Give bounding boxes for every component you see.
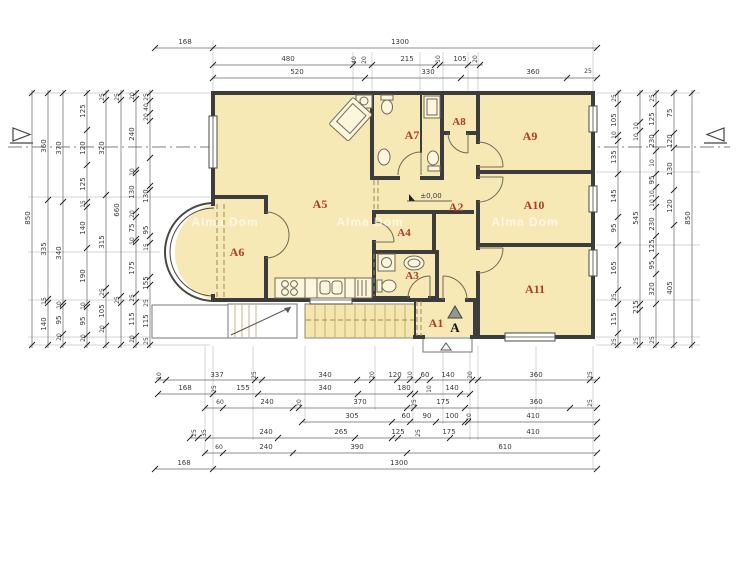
dim-label: 60 <box>402 412 411 420</box>
dim-label: 340 <box>318 384 331 392</box>
dim-label: 168 <box>178 38 191 46</box>
dim-label: 610 <box>498 443 511 451</box>
dim-label: 40 <box>351 56 358 64</box>
level-value: ±0,00 <box>420 192 441 200</box>
dim-label: 105 <box>453 55 466 63</box>
dim-label: 265 <box>334 428 347 436</box>
dim-label: 25 <box>211 385 218 393</box>
dim-label: 155 <box>236 384 249 392</box>
dim-label: 340 <box>318 371 331 379</box>
dim-label: 10 <box>426 385 433 393</box>
watermark: Alma Dom Alma Dom Alma Dom <box>191 215 558 229</box>
dim-label: 125 <box>648 112 656 125</box>
dim-label: 95 <box>610 224 618 233</box>
dim-label: 25 <box>611 338 618 346</box>
section-flag-left <box>13 128 30 141</box>
room-label-a11: A11 <box>525 282 545 296</box>
dim-label: 125 <box>79 177 87 190</box>
dim-label: 105 <box>98 304 106 317</box>
dim-label: 125 <box>648 239 656 252</box>
dim-label: 850 <box>24 211 32 224</box>
room-label-a3: A3 <box>405 270 419 282</box>
dim-label: 75 <box>128 224 136 233</box>
dim-left: 850 360 335 15 140 370 340 10 95 20 125 … <box>24 90 153 348</box>
dim-label: 25 <box>143 337 150 345</box>
dim-label: 520 <box>290 68 303 76</box>
dim-label: 340 <box>55 246 63 259</box>
dim-label: 660 <box>113 203 121 216</box>
dim-label: 240 <box>260 398 273 406</box>
dim-label: 20 <box>80 334 87 342</box>
dim-label: 1300 <box>390 459 408 467</box>
dim-label: 10 <box>633 133 640 141</box>
dim-label: 850 <box>684 211 692 224</box>
svg-text:Alma Dom: Alma Dom <box>191 215 258 229</box>
dim-label: 60 <box>421 371 430 379</box>
dim-label: 240 <box>128 127 136 140</box>
dim-label: 20 <box>467 371 474 379</box>
room-label-a1: A1 <box>429 316 444 330</box>
dim-label: 175 <box>442 428 455 436</box>
dim-label: 10 <box>649 190 656 198</box>
dim-label: 20 <box>56 333 63 341</box>
kitchen-counter <box>275 278 372 298</box>
dim-label: 95 <box>648 261 656 270</box>
dim-label: 165 <box>610 261 618 274</box>
dim-label: 115 <box>128 312 136 325</box>
dim-label: 410 <box>526 428 539 436</box>
dim-label: 10 <box>435 55 442 63</box>
dim-label: 130 <box>666 162 674 175</box>
dim-label: 1300 <box>391 38 409 46</box>
dim-label: 480 <box>281 55 294 63</box>
external-stair <box>152 304 297 338</box>
dim-label: 115 <box>142 314 150 327</box>
dim-label: 145 <box>610 189 618 202</box>
dim-right: 25 105 10 135 145 95 165 25 115 25 10 10… <box>610 90 695 348</box>
dim-label: 305 <box>345 412 358 420</box>
floor-plan-page: Alma Dom Alma Dom Alma Dom A1 A2 A3 A4 A… <box>0 0 738 563</box>
dim-label: 95 <box>142 226 150 235</box>
floor-plan-drawing: Alma Dom Alma Dom Alma Dom A1 A2 A3 A4 A… <box>0 0 738 563</box>
dim-label: 240 <box>259 443 272 451</box>
dim-label: 315 <box>98 235 106 248</box>
room-label-a7: A7 <box>405 128 420 142</box>
dim-label: 240 <box>259 428 272 436</box>
dim-top: 168 1300 480 40 20 215 10 105 20 520 330… <box>152 38 600 81</box>
svg-text:Alma Dom: Alma Dom <box>491 215 558 229</box>
dim-label: 20 <box>472 55 479 63</box>
dim-label: 120 <box>79 141 87 154</box>
dim-label: 360 <box>526 68 539 76</box>
dim-label: 140 <box>445 384 458 392</box>
dim-label: 140 <box>441 371 454 379</box>
dim-label: 60 <box>216 399 224 406</box>
dim-label: 230 <box>648 217 656 230</box>
dim-label: 25 <box>611 293 618 301</box>
dim-label: 25 <box>584 68 592 75</box>
dim-label: 360 <box>529 398 542 406</box>
dim-label: 115 <box>610 312 618 325</box>
dim-label: 25 <box>143 299 150 307</box>
dim-label: 168 <box>177 459 190 467</box>
dim-label: 330 <box>421 68 434 76</box>
dim-label: 190 <box>79 269 87 282</box>
dim-label: 95 <box>648 176 656 185</box>
dim-label: 335 <box>40 242 48 255</box>
room-label-a9: A9 <box>523 129 538 143</box>
dim-label: 140 <box>40 317 48 330</box>
dim-label: 545 <box>632 211 640 224</box>
dim-label: 120 <box>666 134 674 147</box>
svg-text:Alma Dom: Alma Dom <box>336 215 403 229</box>
dim-label: 125 <box>79 104 87 117</box>
dim-bottom: 10 337 25 340 20 120 10 60 140 20 360 25… <box>152 371 600 472</box>
entrance-porch <box>423 338 472 352</box>
section-letter: A <box>450 320 460 335</box>
section-flag-right <box>707 128 724 141</box>
dim-label: 25 <box>633 337 640 345</box>
dim-label: 25 <box>415 429 422 437</box>
dim-label: 125 <box>391 428 404 436</box>
room-label-a8: A8 <box>452 116 466 128</box>
room-label-a4: A4 <box>397 227 411 239</box>
window-a10 <box>589 186 597 212</box>
dim-label: 60 <box>215 444 223 451</box>
dim-label: 168 <box>178 384 191 392</box>
dim-label: 215 <box>400 55 413 63</box>
dim-label: 360 <box>529 371 542 379</box>
dim-label: 370 <box>353 398 366 406</box>
window-a11 <box>589 250 597 276</box>
room-label-a2: A2 <box>449 200 464 214</box>
dim-label: 25 <box>649 336 656 344</box>
room-label-a10: A10 <box>524 198 545 212</box>
room-label-a5: A5 <box>313 197 328 211</box>
dim-label: 120 <box>666 199 674 212</box>
dim-label: 140 <box>79 221 87 234</box>
dim-label: 20 <box>361 56 368 64</box>
dim-label: 20 <box>129 210 136 218</box>
dim-label: 10 <box>611 131 618 139</box>
dim-label: 10 <box>649 159 656 167</box>
dim-label: 100 <box>445 412 458 420</box>
window-a11-bottom <box>505 333 555 341</box>
dim-label: 320 <box>98 141 106 154</box>
dim-label: 75 <box>666 109 674 118</box>
dim-label: 337 <box>210 371 223 379</box>
window-left <box>209 116 217 168</box>
dim-label: 20 <box>129 92 136 100</box>
dim-label: 360 <box>40 139 48 152</box>
dim-label: 95 <box>79 317 87 326</box>
dim-label: 370 <box>55 141 63 154</box>
dim-label: 130 <box>128 185 136 198</box>
dim-label: 175 <box>128 261 136 274</box>
window-a9 <box>589 106 597 132</box>
dim-label: 405 <box>666 281 674 294</box>
dim-label: 40 <box>143 103 150 111</box>
dim-label: 95 <box>55 316 63 325</box>
dim-label: 390 <box>350 443 363 451</box>
dim-label: 20 <box>99 325 106 333</box>
dim-label: 25 <box>649 94 656 102</box>
dim-label: 410 <box>526 412 539 420</box>
dim-label: 135 <box>610 150 618 163</box>
dim-label: 90 <box>423 412 432 420</box>
dim-label: 180 <box>397 384 410 392</box>
dim-label: 320 <box>648 282 656 295</box>
dim-label: 230 <box>648 134 656 147</box>
room-label-a6: A6 <box>230 245 245 259</box>
dim-label: 25 <box>611 94 618 102</box>
dim-label: 35 <box>201 429 208 437</box>
dim-label: 15 <box>80 200 87 208</box>
dim-label: 105 <box>610 113 618 126</box>
dim-label: 25 <box>587 399 594 407</box>
dim-label: 175 <box>436 398 449 406</box>
dim-label: 20 <box>129 335 136 343</box>
